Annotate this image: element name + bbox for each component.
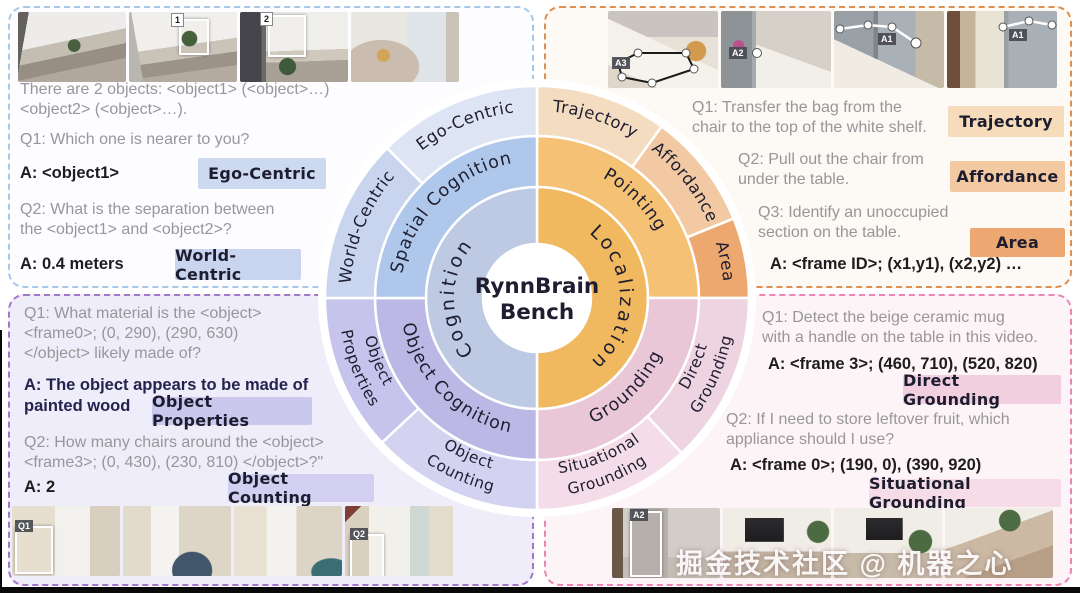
answer-2: A: 2: [24, 477, 55, 498]
center-title: Bench: [500, 300, 574, 325]
world-centric-badge: World-Centric: [175, 249, 301, 280]
video-frame-strip: A3 A2 A1: [608, 11, 1057, 88]
video-frame: Q1: [12, 506, 120, 576]
answer-1: A: <object1>: [20, 163, 119, 184]
center-title: RynnBrain: [475, 274, 599, 299]
video-frame: [123, 506, 231, 576]
letterbox-bar: [0, 330, 2, 587]
area-badge: Area: [970, 228, 1065, 257]
annotation-label: Q1: [15, 520, 33, 532]
ego-centric-badge: Ego-Centric: [198, 158, 326, 189]
trajectory-annotation: [834, 11, 944, 88]
annotation-label: A2: [729, 47, 747, 59]
video-frame: [18, 12, 126, 82]
object-properties-badge: Object Properties: [152, 397, 312, 425]
video-frame: A3: [608, 11, 718, 88]
letterbox-bar: [0, 587, 1080, 593]
object-label: 1: [171, 13, 184, 27]
annotation-label: A1: [1009, 29, 1027, 41]
video-frame: 2: [240, 12, 348, 82]
video-frame-strip: 1 2: [18, 12, 459, 82]
question-2: Q2: What is the separation between the <…: [20, 200, 360, 240]
video-frame: 1: [129, 12, 237, 82]
object-label: 2: [260, 12, 273, 26]
answer: A: <frame ID>; (x1,y1), (x2,y2) …: [770, 254, 1022, 275]
video-frame: [351, 12, 459, 82]
answer-2: A: 0.4 meters: [20, 254, 124, 275]
area-annotation: [608, 11, 718, 88]
annotation-label: A3: [612, 57, 630, 69]
situational-grounding-badge: Situational Grounding: [869, 479, 1061, 507]
video-frame: A1: [947, 11, 1057, 88]
benchmark-figure: 1 2 There are 2 objects: <object1> (<obj…: [0, 0, 1080, 593]
trajectory-annotation: [947, 11, 1057, 88]
question-2: Q2: If I need to store leftover fruit, w…: [726, 410, 1071, 450]
watermark: 掘金技术社区 @ 机器之心: [676, 542, 1013, 581]
trajectory-badge: Trajectory: [948, 106, 1064, 137]
taxonomy-sunburst: LocalizationCognitionPointingGroundingOb…: [317, 78, 757, 518]
video-frame: A1: [834, 11, 944, 88]
direct-grounding-badge: Direct Grounding: [903, 375, 1061, 404]
bounding-box: [15, 526, 53, 574]
bounding-box: [350, 534, 384, 576]
answer-2: A: <frame 0>; (190, 0), (390, 920): [730, 455, 981, 476]
question-1: Q1: Detect the beige ceramic mug with a …: [762, 308, 1072, 348]
annotation-label: A1: [878, 33, 896, 45]
annotation-label: Q2: [350, 528, 368, 540]
question-1: Q1: What material is the <object> <frame…: [24, 304, 364, 364]
affordance-badge: Affordance: [950, 161, 1065, 192]
video-frame: A2: [721, 11, 831, 88]
bounding-box: [268, 15, 306, 57]
